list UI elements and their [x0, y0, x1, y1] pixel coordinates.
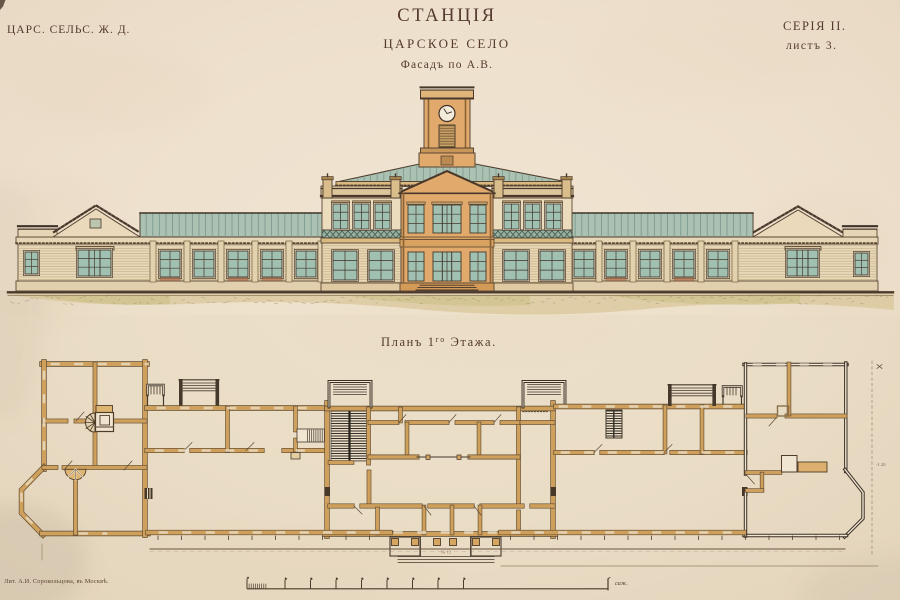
svg-text:№ 12: № 12 [441, 550, 451, 555]
svg-text:ЦАРС. СЕЛЬС. Ж. Д.: ЦАРС. СЕЛЬС. Ж. Д. [7, 24, 130, 36]
svg-text:Лит. А.И. Сорокольцова, въ Мос: Лит. А.И. Сорокольцова, въ Москвѣ. [4, 578, 109, 585]
svg-text:СЕРIЯ II.: СЕРIЯ II. [783, 19, 847, 33]
svg-text:Фасадъ по А.В.: Фасадъ по А.В. [401, 59, 494, 71]
svg-text:листъ 3.: листъ 3. [786, 40, 837, 52]
svg-text:-1.20: -1.20 [876, 462, 886, 467]
svg-text:СТАНЦIЯ: СТАНЦIЯ [397, 6, 497, 26]
svg-text:саж.: саж. [615, 580, 628, 587]
svg-text:ЦАРСКОЕ СЕЛО: ЦАРСКОЕ СЕЛО [383, 36, 510, 51]
